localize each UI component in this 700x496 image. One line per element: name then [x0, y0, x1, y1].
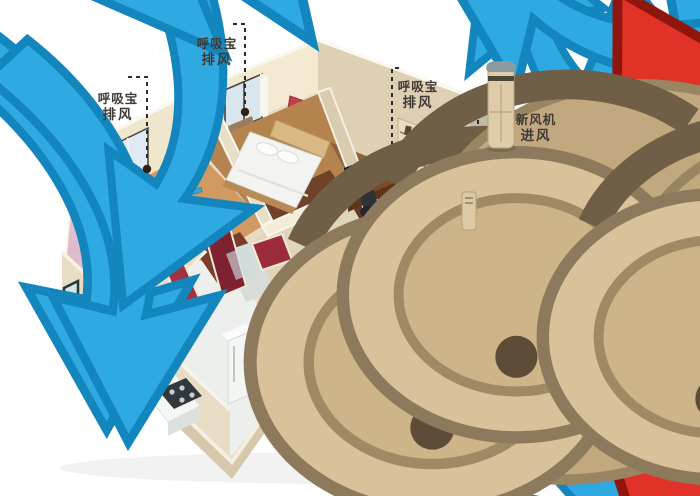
callout-label-exhaust-1: 呼吸宝 排风 — [88, 92, 148, 124]
ventilation-floorplan-image: 呼吸宝 排风 呼吸宝 排风 呼吸宝 排风 新风机 进风 — [0, 0, 700, 496]
floorplan-scene — [0, 0, 700, 496]
device-name-text: 呼吸宝 — [388, 80, 448, 95]
callout-label-fresh-air: 新风机 进风 — [502, 113, 570, 145]
device-function-text: 排风 — [187, 52, 247, 68]
indoor-fresh-air-unit — [462, 192, 476, 230]
device-name-text: 呼吸宝 — [187, 37, 247, 52]
device-name-text: 呼吸宝 — [88, 92, 148, 107]
device-name-text: 新风机 — [502, 113, 570, 128]
callout-label-exhaust-2: 呼吸宝 排风 — [187, 37, 247, 69]
callout-label-exhaust-3: 呼吸宝 排风 — [388, 80, 448, 112]
device-function-text: 排风 — [388, 95, 448, 111]
exhaust-vent-dot — [143, 165, 151, 173]
device-function-text: 排风 — [88, 107, 148, 123]
device-function-text: 进风 — [502, 128, 570, 144]
exhaust-vent-dot — [241, 108, 249, 116]
